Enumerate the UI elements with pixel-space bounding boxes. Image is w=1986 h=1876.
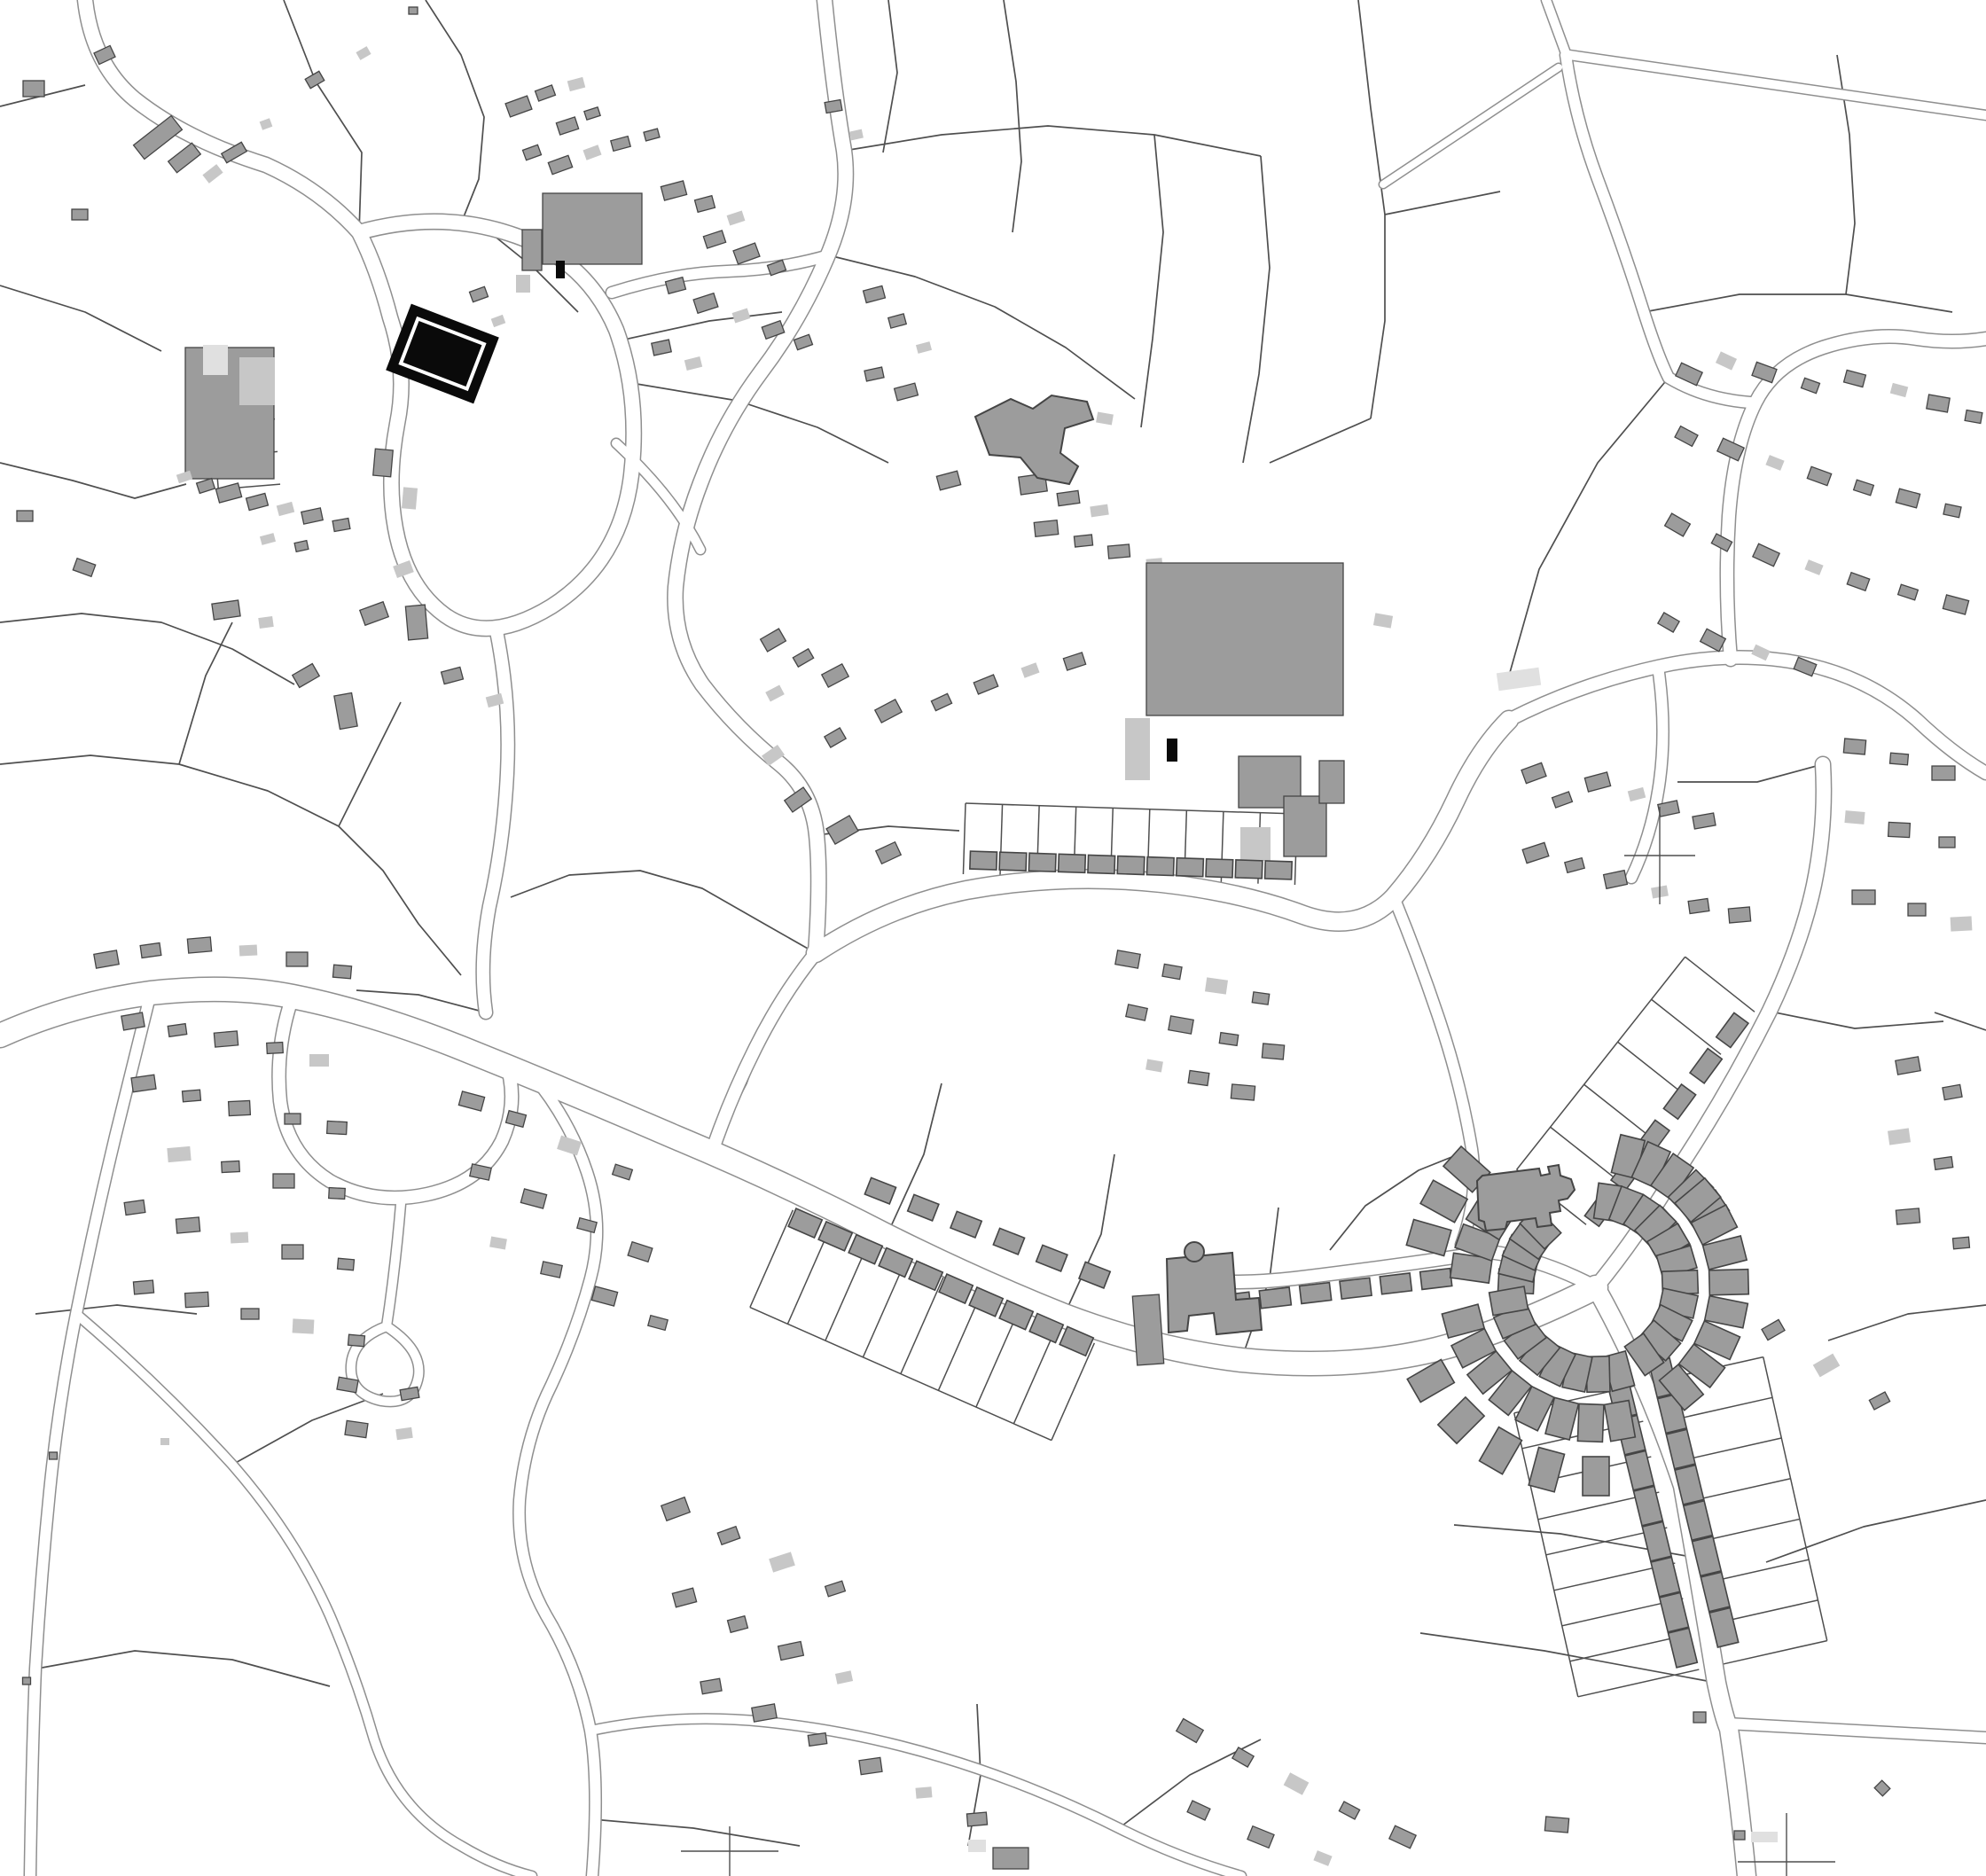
parcel-boundary	[0, 463, 186, 498]
building	[1020, 662, 1039, 677]
building	[693, 293, 718, 314]
building	[522, 145, 541, 160]
row-house	[1651, 1557, 1680, 1597]
building	[1807, 466, 1831, 485]
building	[222, 1161, 240, 1172]
row-house	[1577, 1403, 1604, 1442]
building	[329, 1188, 346, 1200]
building	[121, 1012, 145, 1030]
row-house	[1406, 1219, 1451, 1255]
building	[1169, 1016, 1193, 1034]
building	[140, 943, 161, 958]
building	[1125, 718, 1150, 780]
parcel-boundary	[1509, 378, 1669, 676]
building	[356, 46, 371, 60]
building	[1205, 977, 1228, 994]
building	[717, 1527, 739, 1545]
row-house	[1079, 1262, 1110, 1288]
building	[613, 1164, 633, 1180]
building	[1932, 766, 1955, 780]
building	[167, 1146, 191, 1162]
road	[76, 1314, 532, 1876]
building	[1896, 1057, 1920, 1075]
building	[1953, 1237, 1970, 1249]
road	[711, 953, 816, 1154]
building	[176, 471, 192, 483]
road-casing	[590, 1719, 1241, 1876]
building	[1146, 563, 1343, 715]
strip-parcel-line	[1052, 1343, 1094, 1441]
building	[1584, 772, 1610, 792]
building	[1890, 753, 1909, 765]
road	[612, 255, 829, 293]
building	[1665, 513, 1691, 536]
building	[1167, 739, 1177, 762]
building	[286, 952, 308, 966]
row-house	[999, 852, 1027, 871]
building	[1090, 504, 1108, 518]
map-canvas	[0, 0, 1986, 1876]
building	[808, 1733, 826, 1747]
building	[727, 211, 746, 226]
row-house	[1438, 1397, 1484, 1443]
row-house	[970, 851, 997, 870]
row-house	[950, 1211, 981, 1238]
parcel-boundary	[511, 871, 816, 953]
building	[491, 315, 506, 327]
building	[332, 965, 351, 979]
parcel-boundary	[592, 1819, 800, 1846]
building	[1898, 584, 1919, 600]
strip-parcel-line	[1618, 1042, 1687, 1097]
building	[187, 937, 211, 953]
row-house	[1117, 856, 1145, 875]
manor-round-tower	[1185, 1242, 1204, 1262]
building	[405, 605, 427, 640]
building	[94, 950, 119, 968]
row-house	[864, 1177, 895, 1204]
building	[1177, 1719, 1204, 1743]
building	[1943, 504, 1961, 517]
row-house	[993, 1228, 1024, 1255]
building	[1908, 903, 1926, 916]
building	[282, 1245, 303, 1259]
row-house	[1340, 1278, 1372, 1299]
building	[1162, 964, 1182, 979]
building	[332, 519, 350, 532]
row-house	[1669, 1628, 1698, 1668]
building	[168, 1024, 186, 1037]
building	[556, 117, 578, 135]
row-house	[1663, 1084, 1695, 1119]
parcel-boundary	[616, 312, 782, 341]
parcel-boundary	[1766, 1500, 1986, 1562]
parcel-boundary	[0, 755, 461, 975]
road	[85, 0, 359, 232]
building	[825, 1581, 846, 1597]
building	[916, 1786, 933, 1799]
building	[516, 275, 530, 293]
building	[258, 616, 274, 629]
row-house	[1177, 858, 1204, 877]
building	[1843, 739, 1865, 754]
building	[273, 1174, 294, 1188]
road-casing	[76, 1314, 532, 1876]
building	[1801, 378, 1819, 393]
building	[520, 1189, 546, 1208]
row-house	[1088, 855, 1115, 873]
parcel-boundary	[1385, 192, 1500, 215]
building	[895, 383, 919, 401]
building	[973, 675, 997, 694]
building	[968, 1840, 986, 1852]
row-house	[908, 1194, 939, 1221]
road	[483, 631, 508, 1012]
road-casing	[30, 993, 151, 1876]
building	[301, 508, 323, 524]
row-house	[1059, 854, 1086, 872]
building	[131, 1075, 156, 1091]
building	[360, 602, 388, 625]
building	[864, 367, 884, 381]
building	[124, 1200, 145, 1215]
parcel-boundary	[0, 285, 161, 351]
row-house	[1690, 1049, 1722, 1083]
building	[1890, 383, 1908, 397]
building	[1752, 362, 1777, 382]
road	[1546, 0, 1566, 53]
building	[1188, 1071, 1209, 1086]
road	[1566, 55, 1750, 403]
building	[260, 118, 273, 130]
building	[966, 1812, 987, 1826]
building	[1869, 1392, 1889, 1410]
building	[133, 1280, 153, 1294]
building	[769, 1552, 795, 1572]
row-house	[1529, 1448, 1564, 1492]
building	[1888, 822, 1911, 837]
building	[1063, 653, 1085, 670]
building	[293, 1318, 315, 1333]
building	[23, 81, 44, 97]
building	[1844, 370, 1866, 387]
manor-barn	[1132, 1294, 1163, 1365]
building	[1604, 871, 1628, 889]
strip-parcel-line	[750, 1210, 793, 1308]
building	[23, 1677, 31, 1684]
road	[590, 1719, 1241, 1876]
building	[294, 541, 309, 552]
building	[168, 143, 201, 173]
parcel-boundary	[631, 383, 888, 463]
row-house	[1146, 857, 1174, 876]
building	[1716, 351, 1737, 370]
row-house	[1583, 1457, 1609, 1496]
building	[489, 1237, 507, 1250]
row-house	[1705, 1296, 1748, 1328]
building	[214, 1031, 238, 1047]
building	[1389, 1825, 1416, 1848]
building	[794, 334, 812, 349]
building	[826, 816, 858, 844]
road	[1569, 55, 1986, 115]
building	[277, 502, 294, 516]
parcel-boundary	[426, 0, 484, 223]
strip-parcel-line	[1685, 957, 1755, 1012]
building	[728, 1616, 748, 1633]
building	[1145, 1059, 1163, 1073]
landmark-layer	[386, 304, 1575, 1365]
building	[1896, 1208, 1920, 1224]
building	[185, 1292, 209, 1307]
row-house	[1235, 860, 1263, 879]
road	[1631, 667, 1663, 878]
row-house	[1660, 1592, 1689, 1632]
building	[1247, 1826, 1274, 1849]
building	[1874, 1780, 1890, 1796]
building	[931, 693, 951, 710]
building	[916, 341, 932, 354]
building	[652, 340, 671, 356]
building	[1804, 559, 1823, 575]
building	[584, 107, 600, 120]
strip-parcel-line	[1724, 1641, 1827, 1664]
building	[644, 129, 660, 141]
building	[1896, 489, 1920, 508]
building	[1888, 1128, 1911, 1145]
building	[17, 511, 33, 521]
building	[1552, 792, 1573, 808]
building	[469, 286, 488, 301]
building	[50, 1452, 58, 1459]
building	[1765, 455, 1784, 471]
building	[1943, 1084, 1962, 1099]
strip-parcel-line	[901, 1277, 943, 1374]
building	[1231, 1084, 1255, 1100]
building	[285, 1114, 301, 1124]
building	[395, 1427, 412, 1440]
row-house	[1300, 1283, 1332, 1304]
building	[522, 230, 542, 270]
building	[327, 1121, 348, 1134]
building	[1096, 412, 1114, 426]
building	[1219, 1033, 1238, 1046]
building	[993, 1848, 1028, 1869]
building	[864, 285, 886, 302]
building	[1115, 950, 1140, 968]
building	[661, 181, 686, 200]
building	[1762, 1319, 1785, 1340]
row-house	[1259, 1287, 1291, 1309]
building	[700, 1678, 722, 1694]
building	[212, 600, 240, 620]
building	[1262, 1044, 1284, 1059]
building	[732, 309, 751, 324]
building	[567, 77, 585, 91]
building	[267, 1043, 284, 1054]
building	[825, 728, 846, 747]
building	[1126, 1004, 1147, 1020]
building	[628, 1242, 653, 1262]
building	[183, 1090, 201, 1102]
building	[695, 196, 715, 213]
strip-parcel-back-line	[750, 1308, 1052, 1441]
building	[202, 164, 223, 184]
building	[1284, 796, 1326, 856]
building	[1813, 1354, 1841, 1378]
building	[1939, 837, 1955, 848]
building	[505, 96, 532, 117]
building	[1688, 899, 1709, 914]
building	[1107, 544, 1130, 559]
building	[409, 7, 418, 14]
building	[1927, 395, 1950, 412]
road	[1383, 67, 1559, 184]
building	[835, 1670, 853, 1684]
building	[203, 345, 228, 375]
road	[30, 993, 151, 1876]
building	[1373, 613, 1393, 628]
road	[1727, 1724, 1986, 1738]
building	[241, 1309, 259, 1319]
building	[536, 85, 556, 101]
road	[1509, 657, 1986, 773]
building	[661, 1497, 690, 1520]
building	[611, 137, 630, 152]
building	[888, 314, 906, 328]
building	[1522, 842, 1549, 863]
building	[1187, 1801, 1210, 1820]
building	[591, 1286, 617, 1306]
building	[338, 1258, 355, 1270]
building	[231, 1231, 249, 1243]
parcel-boundary	[1064, 1154, 1114, 1316]
building	[229, 1100, 251, 1115]
building	[458, 1091, 484, 1111]
building	[73, 559, 95, 577]
building	[1693, 813, 1716, 829]
building	[345, 1420, 368, 1437]
parcel-boundary	[1141, 135, 1163, 427]
parcel-boundary	[844, 126, 1261, 156]
parcel-boundary	[1004, 0, 1021, 232]
building	[684, 356, 702, 371]
parcel-boundary	[0, 614, 294, 684]
building	[176, 1217, 199, 1233]
parcel-boundary	[1358, 0, 1385, 418]
building	[337, 1377, 358, 1393]
building	[1057, 490, 1080, 505]
building	[1753, 543, 1779, 566]
building	[215, 483, 241, 503]
building	[1675, 426, 1698, 447]
building	[1313, 1850, 1332, 1866]
parcel-boundary	[1644, 294, 1952, 312]
building	[1951, 916, 1973, 931]
building	[1319, 761, 1344, 803]
building	[703, 231, 725, 248]
building	[733, 243, 760, 264]
building	[1628, 787, 1646, 801]
parcel-boundary	[1677, 764, 1823, 782]
strip-parcel-back-line	[1763, 1357, 1827, 1641]
row-house	[1480, 1427, 1522, 1474]
building	[1734, 1831, 1745, 1840]
row-house	[1420, 1180, 1467, 1223]
row-house	[1709, 1270, 1749, 1295]
building	[556, 261, 565, 278]
parcel-boundary	[1766, 1011, 1943, 1028]
building	[197, 479, 215, 494]
building	[765, 684, 785, 701]
building	[1074, 535, 1092, 547]
building	[1728, 907, 1750, 923]
strip-parcel-line	[1578, 1669, 1700, 1697]
parcel-boundary	[1454, 1525, 1711, 1560]
building	[1751, 1832, 1778, 1842]
building	[859, 1757, 882, 1774]
building	[309, 1054, 329, 1067]
parcel-boundary	[1270, 418, 1371, 463]
building	[1658, 613, 1679, 632]
building	[1854, 480, 1874, 496]
road	[0, 989, 1596, 1364]
building	[761, 629, 786, 652]
building	[849, 129, 864, 141]
town-map	[0, 0, 1986, 1876]
building	[72, 209, 88, 220]
building	[1847, 573, 1869, 591]
building	[1544, 1817, 1568, 1833]
building	[1339, 1802, 1359, 1819]
strip-parcel-line	[1584, 1084, 1654, 1139]
parcel-boundary	[37, 1651, 330, 1686]
strip-parcel-line	[1652, 999, 1721, 1054]
building	[1034, 520, 1059, 537]
parcel-boundary	[883, 0, 897, 152]
building	[548, 155, 572, 174]
building	[1240, 827, 1271, 861]
building	[402, 487, 418, 509]
building	[1565, 858, 1584, 873]
building	[876, 842, 902, 864]
row-house	[1420, 1269, 1452, 1290]
road-layer	[0, 0, 1986, 1876]
building	[541, 1262, 562, 1278]
parcel-boundary	[35, 1305, 197, 1314]
building	[1284, 1772, 1310, 1794]
row-house	[1206, 859, 1233, 878]
building	[1965, 410, 1982, 424]
building	[1934, 1157, 1952, 1170]
building	[1232, 1747, 1254, 1767]
row-house	[1028, 853, 1056, 872]
row-house	[1265, 861, 1293, 879]
building	[1943, 595, 1968, 614]
building	[825, 100, 842, 113]
building	[936, 471, 960, 490]
building	[260, 533, 276, 545]
building	[648, 1316, 668, 1331]
building	[778, 1641, 804, 1660]
building	[400, 1387, 419, 1400]
parcel-boundary	[179, 622, 232, 764]
parcel-boundary	[1828, 1305, 1986, 1341]
building	[442, 667, 464, 684]
large-farm-building	[975, 395, 1093, 484]
building	[822, 664, 848, 687]
road-casing	[0, 989, 1596, 1364]
